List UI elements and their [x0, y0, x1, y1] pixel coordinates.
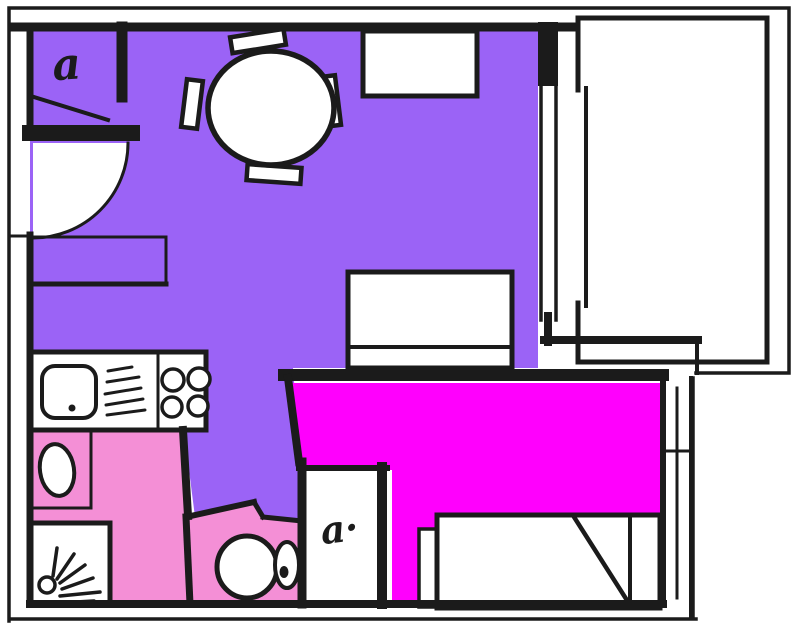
- sideboard: [363, 31, 477, 96]
- entry-coat-hook-icon: a: [51, 38, 83, 91]
- burner-icon: [188, 396, 208, 416]
- bath-hall-wall: [183, 430, 188, 516]
- kitchen-sink: [42, 366, 96, 418]
- burner-icon: [162, 369, 184, 391]
- chair-west: [181, 79, 203, 129]
- toilet-bowl: [217, 536, 277, 598]
- sofa: [348, 272, 512, 368]
- kitchen-counter: [30, 352, 210, 430]
- toilet-flush-dot: [280, 566, 289, 578]
- burner-icon: [188, 368, 210, 390]
- bed: [437, 515, 660, 608]
- wc-bath-divider-wall: [186, 517, 190, 604]
- wardrobe-coat-hook-icon: a·: [318, 504, 361, 553]
- toilet-tank: [275, 542, 299, 588]
- burner-icon: [162, 397, 182, 417]
- wardrobe: a·: [299, 462, 387, 604]
- sink-drain-dot: [69, 405, 76, 412]
- sofa-body: [348, 272, 512, 368]
- window-wall-pier: [538, 22, 558, 86]
- round-dining-table: [208, 51, 334, 165]
- bedside-table: [419, 529, 437, 607]
- floor-plan: a: [0, 0, 800, 641]
